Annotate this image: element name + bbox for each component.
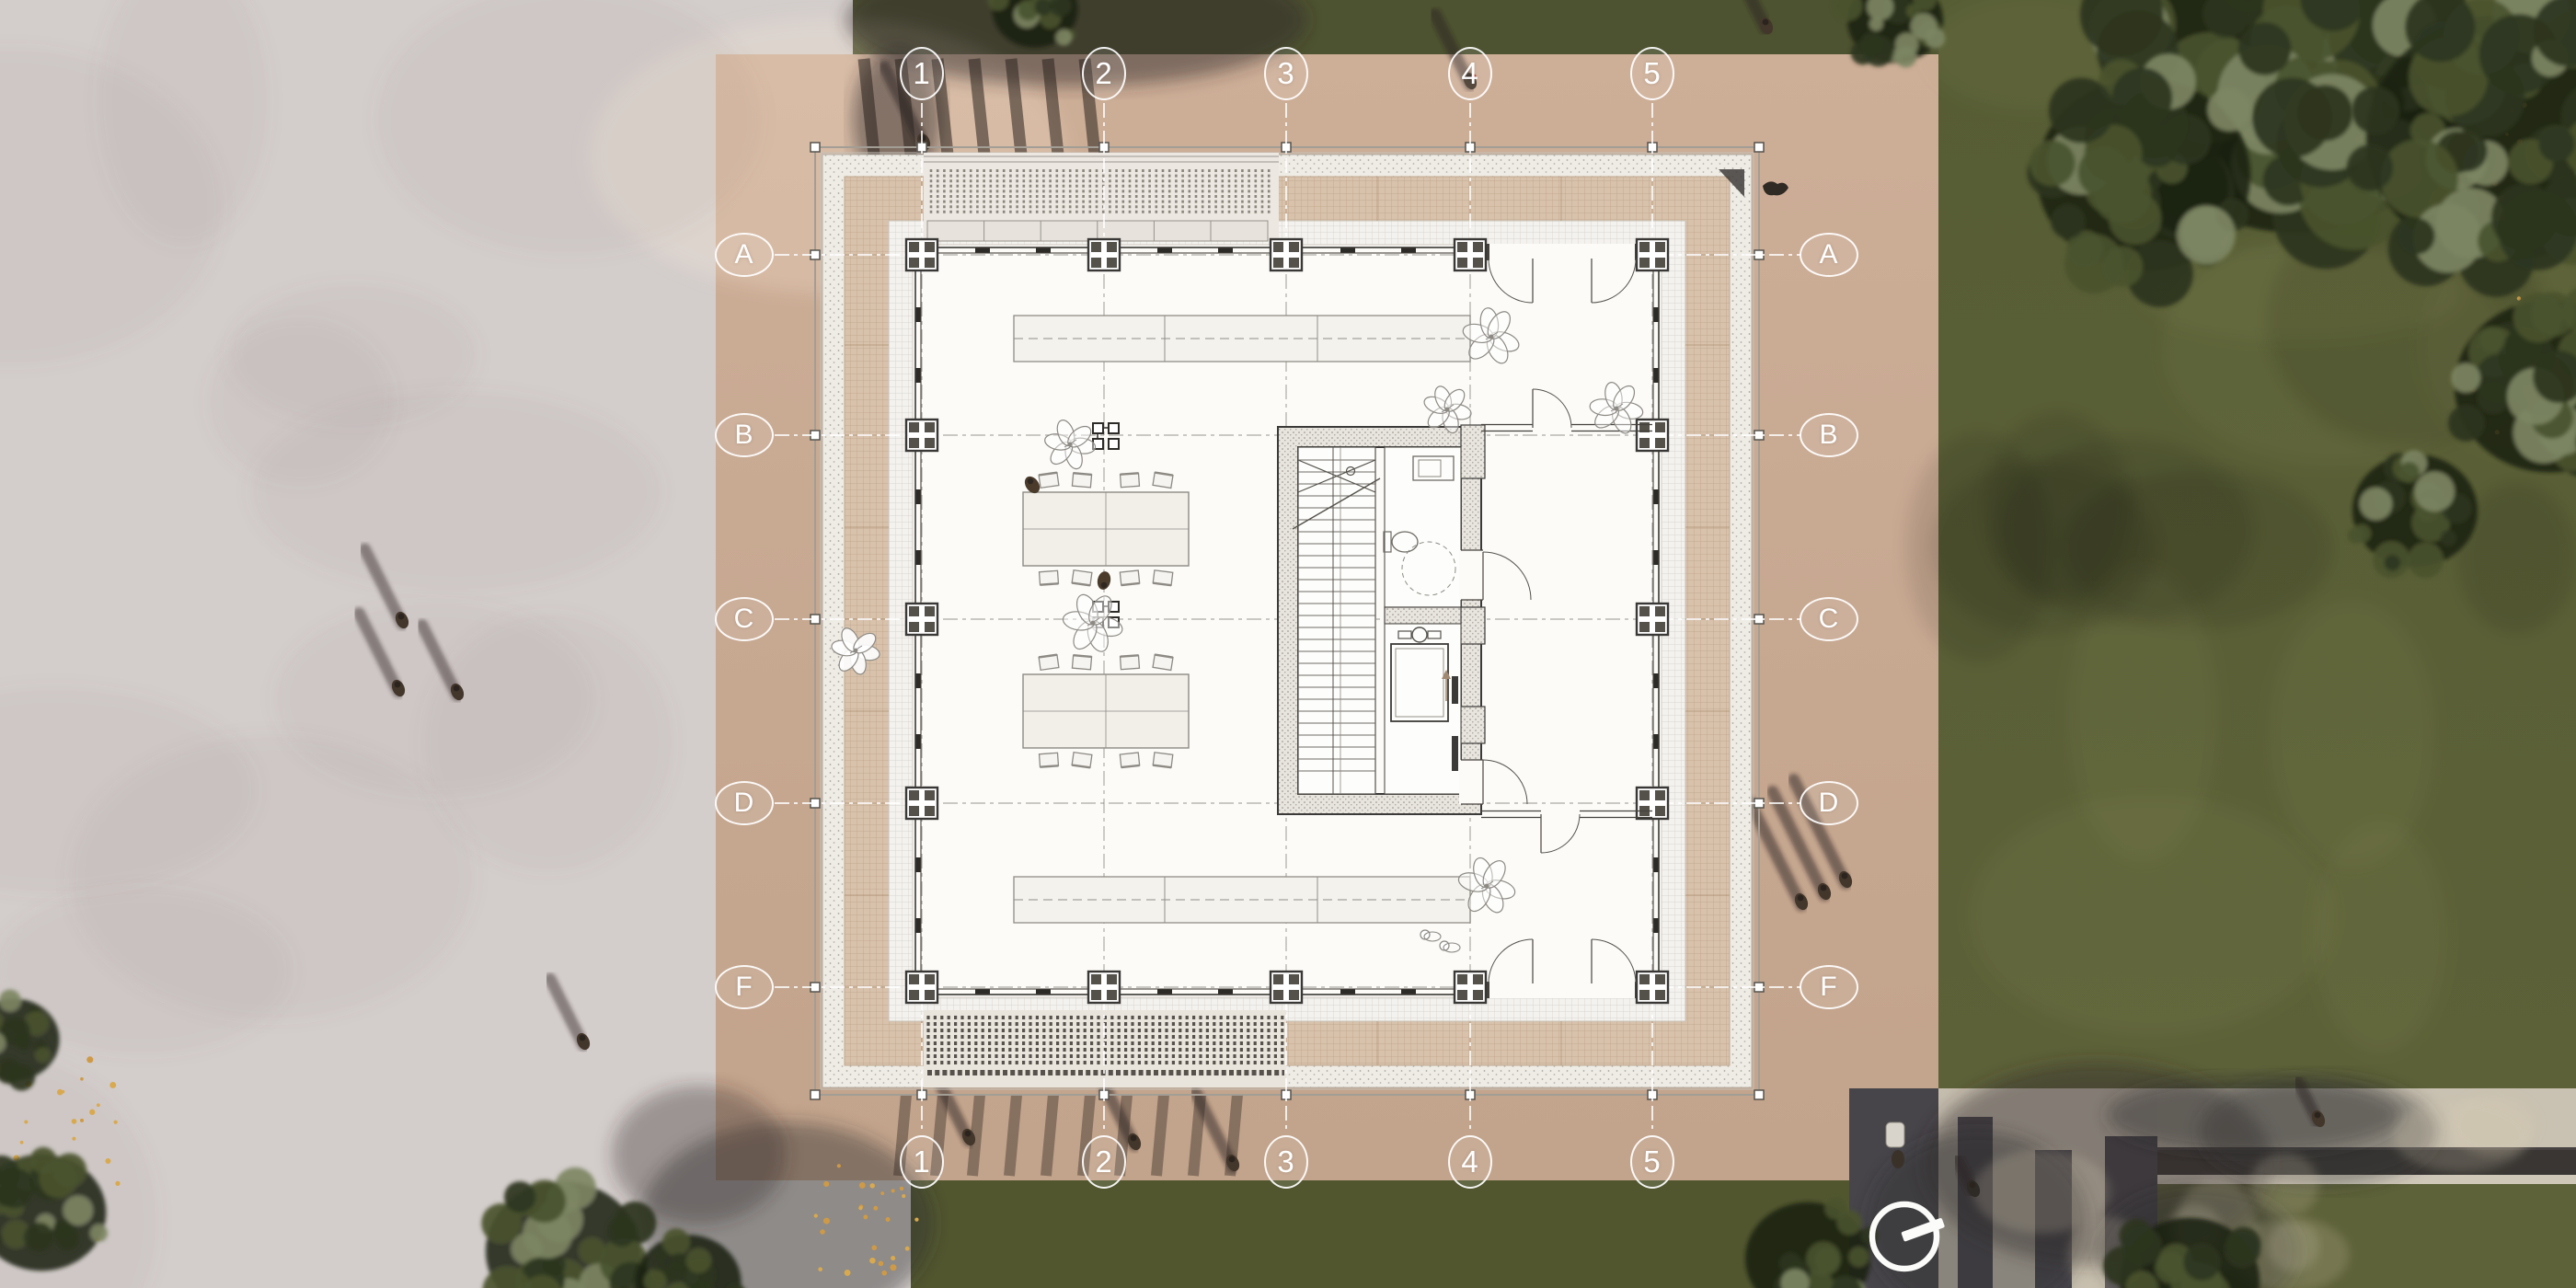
mullion-tick (916, 368, 921, 383)
column (1637, 972, 1668, 1003)
column (1637, 604, 1668, 635)
chair (1153, 473, 1173, 489)
chair (1120, 753, 1139, 767)
door-gap (1488, 244, 1637, 260)
grid-bubble-right-A: A (1800, 233, 1858, 277)
mullion-tick (916, 550, 921, 565)
column (906, 788, 937, 819)
column (1637, 788, 1668, 819)
mullion-tick (1654, 673, 1659, 688)
grid-bubble-top-5: 5 (1630, 47, 1674, 100)
chair (1039, 473, 1059, 489)
mullion-tick (1654, 734, 1659, 749)
grid-bubble-bottom-5: 5 (1630, 1135, 1674, 1189)
column (906, 972, 937, 1003)
mullion-tick (1157, 990, 1172, 995)
chair (1121, 473, 1140, 487)
grid-bubble-right-B: B (1800, 413, 1858, 457)
mullion-tick (1036, 248, 1051, 253)
mullion-tick (916, 734, 921, 749)
mullion-tick (1218, 248, 1233, 253)
mullion-tick (1340, 248, 1355, 253)
mullion-tick (975, 248, 990, 253)
mullion-tick (1654, 550, 1659, 565)
grid-bubble-bottom-1: 1 (900, 1135, 944, 1189)
chair (1153, 753, 1173, 767)
core-partition (1385, 607, 1461, 624)
frame-marker (811, 1090, 820, 1099)
mullion-tick (1401, 248, 1416, 253)
mullion-tick (1654, 918, 1659, 933)
mullion-tick (916, 489, 921, 504)
mullion-tick (916, 857, 921, 872)
grid-bubble-right-D: D (1800, 781, 1858, 825)
mullion-tick (1157, 248, 1172, 253)
grid-bubble-left-D: D (715, 781, 774, 825)
chair (1040, 753, 1059, 766)
grid-bubble-top-3: 3 (1264, 47, 1308, 100)
grid-bubble-top-1: 1 (900, 47, 944, 100)
column (1455, 972, 1486, 1003)
column (1271, 239, 1302, 270)
chair (1153, 655, 1173, 671)
chair (1121, 655, 1140, 669)
chair (1120, 570, 1139, 585)
grid-bubble-left-B: B (715, 413, 774, 457)
column (1637, 239, 1668, 270)
person-head (1101, 582, 1107, 588)
core-pier (1461, 607, 1485, 644)
wc-room (1385, 447, 1461, 607)
mullion-tick (1401, 990, 1416, 995)
core-pier (1461, 425, 1485, 478)
mullion-tick (1218, 990, 1233, 995)
chair (1072, 753, 1092, 768)
chair (1153, 570, 1173, 585)
grid-bubble-bottom-4: 4 (1448, 1135, 1492, 1189)
chair (1072, 473, 1091, 488)
mullion-tick (1654, 489, 1659, 504)
site-plan-stage: 1122334455AABBCCDDFF (0, 0, 2576, 1288)
grid-bubble-left-A: A (715, 233, 774, 277)
grid-bubble-top-4: 4 (1448, 47, 1492, 100)
grid-bubble-right-F: F (1800, 965, 1858, 1009)
grid-bubble-left-F: F (715, 965, 774, 1009)
chair (1072, 570, 1092, 586)
chair (1072, 655, 1091, 670)
floor-plan-drawing (0, 0, 2576, 1288)
mullion-tick (975, 990, 990, 995)
person-head (1028, 478, 1033, 484)
mullion-tick (1654, 857, 1659, 872)
column (906, 420, 937, 451)
grid-bubble-left-C: C (715, 597, 774, 641)
elevator-door (1452, 736, 1458, 771)
stair-shaft (1298, 447, 1375, 794)
column (1455, 239, 1486, 270)
grid-bubble-right-C: C (1800, 597, 1858, 641)
mullion-tick (916, 307, 921, 322)
column (1271, 972, 1302, 1003)
frame-marker (1754, 143, 1764, 152)
grid-bubble-bottom-3: 3 (1264, 1135, 1308, 1189)
grid-bubble-top-2: 2 (1082, 47, 1126, 100)
grid-bubble-bottom-2: 2 (1082, 1135, 1126, 1189)
frame-marker (811, 143, 820, 152)
mullion-tick (1340, 990, 1355, 995)
frame-marker (1754, 1090, 1764, 1099)
mullion-tick (916, 673, 921, 688)
mullion-tick (1654, 307, 1659, 322)
column (1088, 239, 1120, 270)
core-pier (1461, 707, 1485, 743)
column (1088, 972, 1120, 1003)
column (906, 604, 937, 635)
mullion-tick (1036, 990, 1051, 995)
mullion-tick (916, 918, 921, 933)
elevator-cab (1391, 644, 1448, 721)
column (906, 239, 937, 270)
door-gap (1488, 982, 1637, 998)
mullion-tick (1654, 368, 1659, 383)
plan-shape (1459, 760, 1485, 804)
chair (1040, 570, 1059, 584)
elevator-door (1452, 676, 1458, 704)
chair (1039, 655, 1059, 671)
plan-shape (1459, 550, 1485, 600)
